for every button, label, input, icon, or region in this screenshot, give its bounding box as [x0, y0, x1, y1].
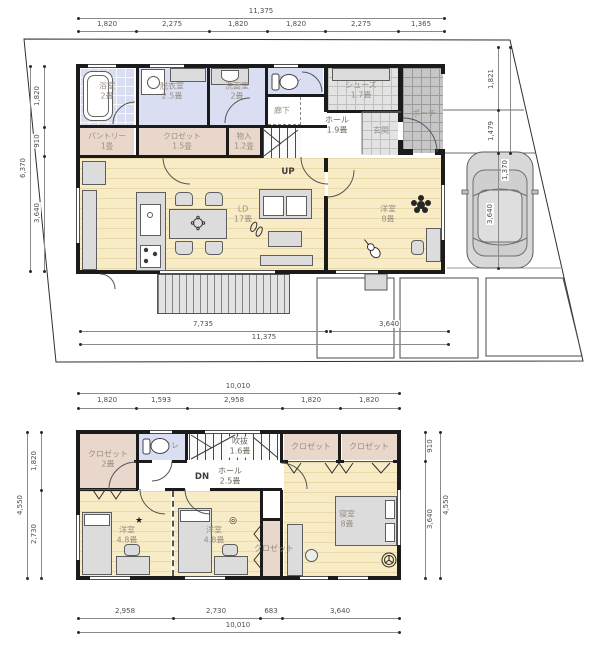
toilet-tank-2f [143, 439, 150, 454]
stair-diagonal-1f-b [264, 130, 281, 144]
door-arc-front-door [403, 118, 437, 152]
door-arc-western-1f [327, 170, 354, 197]
entry-step-line [362, 112, 401, 154]
toilet-tank-1f [272, 74, 279, 90]
slippers-icon [248, 221, 264, 237]
floor-plan-canvas: 浴室2畳 脱衣室2.5畳 洗面室2畳 トイレ 廊下 パントリー1畳 クロゼット1… [0, 0, 601, 657]
door-arc-bath [113, 102, 135, 124]
door-arc-bedroom [281, 463, 307, 489]
guitar-icon-1f [361, 237, 382, 260]
table-flower-icon [191, 216, 204, 229]
plant-icon [411, 195, 431, 213]
door-arc-kitchen-exit [100, 274, 115, 289]
toilet-bowl-1f [280, 75, 298, 90]
door-arc-closet-a [109, 462, 136, 489]
door-arc-lavatory [225, 98, 250, 123]
stair-diagonal-2f-c [253, 437, 278, 458]
door-arc-closet-1f [163, 157, 190, 184]
door-arc-westb [185, 489, 210, 514]
sink-faucet [148, 213, 153, 218]
door-arc-toilet-2f [152, 461, 172, 481]
stair-diagonal-2f-b [191, 435, 212, 448]
hanger-marks [93, 463, 390, 570]
door-arc-hall-ld [301, 157, 328, 184]
toilet-bowl-2f [151, 439, 169, 454]
fan-icon-bedroom [382, 553, 396, 567]
stove-burners [144, 248, 157, 263]
door-arc-toilet-1f [302, 72, 322, 92]
detail-layer [0, 0, 601, 657]
door-arc-westa [140, 489, 165, 514]
